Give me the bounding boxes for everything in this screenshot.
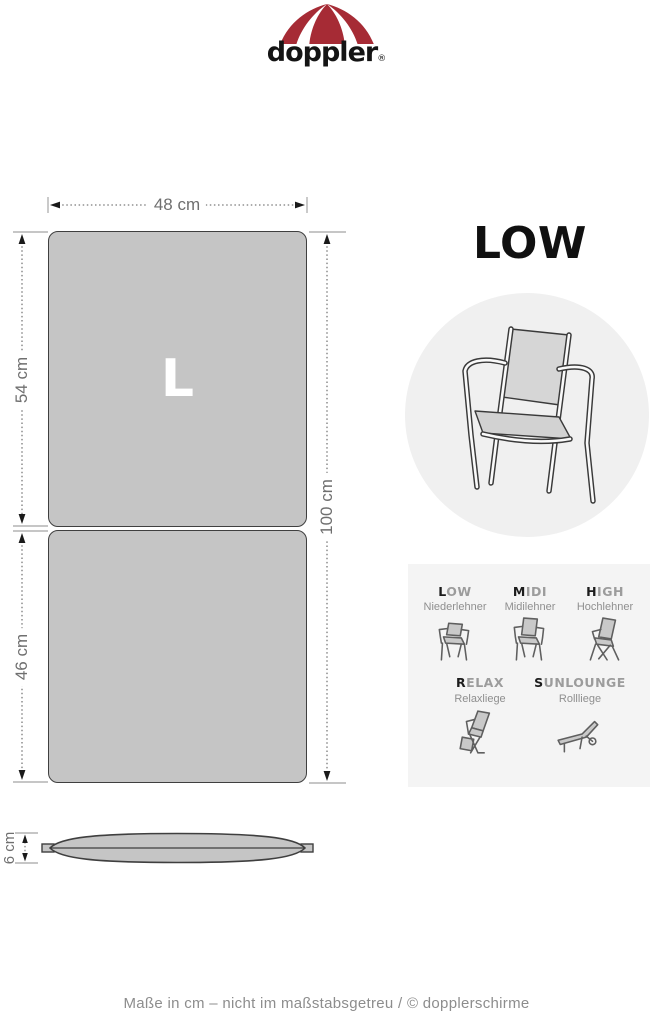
product-type-title: LOW <box>410 222 650 266</box>
legend-label-high: HIGH <box>586 584 624 600</box>
legend-label-midi-first: M <box>513 584 526 599</box>
cushion-top-view-lower <box>48 530 307 783</box>
brand-name-text: doppler <box>267 37 377 68</box>
dim-upper-arrow-top <box>19 234 26 244</box>
legend-sub-relax: Relaxliege <box>454 693 505 705</box>
high-chair-icon <box>584 617 626 663</box>
dim-thickness-label: 6 cm <box>1 828 19 869</box>
cushion-top-view-upper: L <box>48 231 307 527</box>
legend-label-low-rest: OW <box>446 584 471 599</box>
dim-lower-label: 46 cm <box>12 628 32 686</box>
legend-label-low: LOW <box>438 584 471 600</box>
dim-lower-arrow-top <box>19 533 26 543</box>
page: doppler® <box>0 0 653 1020</box>
relax-chair-icon <box>457 709 503 757</box>
dim-lower-arrow-bottom <box>19 770 26 780</box>
dim-upper-label: 54 cm <box>12 351 32 409</box>
legend-item-sunlounge: SUNLOUNGE Rollliege <box>543 675 617 756</box>
chair-type-circle <box>405 293 649 537</box>
footer-note: Maße in cm – nicht im maßstabsgetreu / ©… <box>0 995 653 1012</box>
dim-width-arrow-right <box>295 202 305 209</box>
legend-item-relax: RELAX Relaxliege <box>443 675 517 756</box>
legend-label-sunlounge: SUNLOUNGE <box>534 675 626 691</box>
legend-sub-high: Hochlehner <box>577 601 633 613</box>
midi-chair-icon <box>509 617 551 663</box>
legend-label-relax-first: R <box>456 675 466 690</box>
dim-total-arrow-bottom <box>324 771 331 781</box>
legend-label-relax-rest: ELAX <box>466 675 504 690</box>
low-chair-illustration <box>445 315 609 515</box>
registered-mark: ® <box>377 54 386 64</box>
legend-label-sunlounge-first: S <box>534 675 544 690</box>
low-chair-icon <box>434 617 476 663</box>
sunlounge-icon <box>555 709 605 757</box>
legend-label-high-first: H <box>586 584 597 599</box>
brand-wordmark: doppler® <box>0 39 653 66</box>
legend-row-2: RELAX Relaxliege SUNLOUNGE Rollliege <box>418 675 642 756</box>
legend-item-midi: MIDI Midilehner <box>493 584 567 663</box>
dim-thickness-arrow-top <box>22 835 28 844</box>
legend-item-high: HIGH Hochlehner <box>568 584 642 663</box>
dim-width-arrow-left <box>50 202 60 209</box>
legend-sub-sunlounge: Rollliege <box>559 693 601 705</box>
legend-label-midi: MIDI <box>513 584 547 600</box>
legend-sub-midi: Midilehner <box>505 601 556 613</box>
dim-width-label: 48 cm <box>148 195 206 215</box>
size-letter: L <box>161 353 194 405</box>
legend-label-high-rest: IGH <box>597 584 624 599</box>
chair-type-legend: LOW Niederlehner MIDI Midilehner <box>408 564 650 787</box>
legend-label-relax: RELAX <box>456 675 504 691</box>
cushion-side-view <box>42 834 313 863</box>
legend-label-sunlounge-rest: UNLOUNGE <box>544 675 626 690</box>
legend-sub-low: Niederlehner <box>424 601 487 613</box>
legend-label-midi-rest: IDI <box>526 584 547 599</box>
dim-upper-arrow-bottom <box>19 514 26 524</box>
brand-logo: doppler® <box>0 0 653 66</box>
dim-total-arrow-top <box>324 234 331 244</box>
legend-row-1: LOW Niederlehner MIDI Midilehner <box>418 584 642 663</box>
legend-item-low: LOW Niederlehner <box>418 584 492 663</box>
dim-thickness-arrow-bottom <box>22 853 28 862</box>
dim-total-label: 100 cm <box>317 473 337 541</box>
